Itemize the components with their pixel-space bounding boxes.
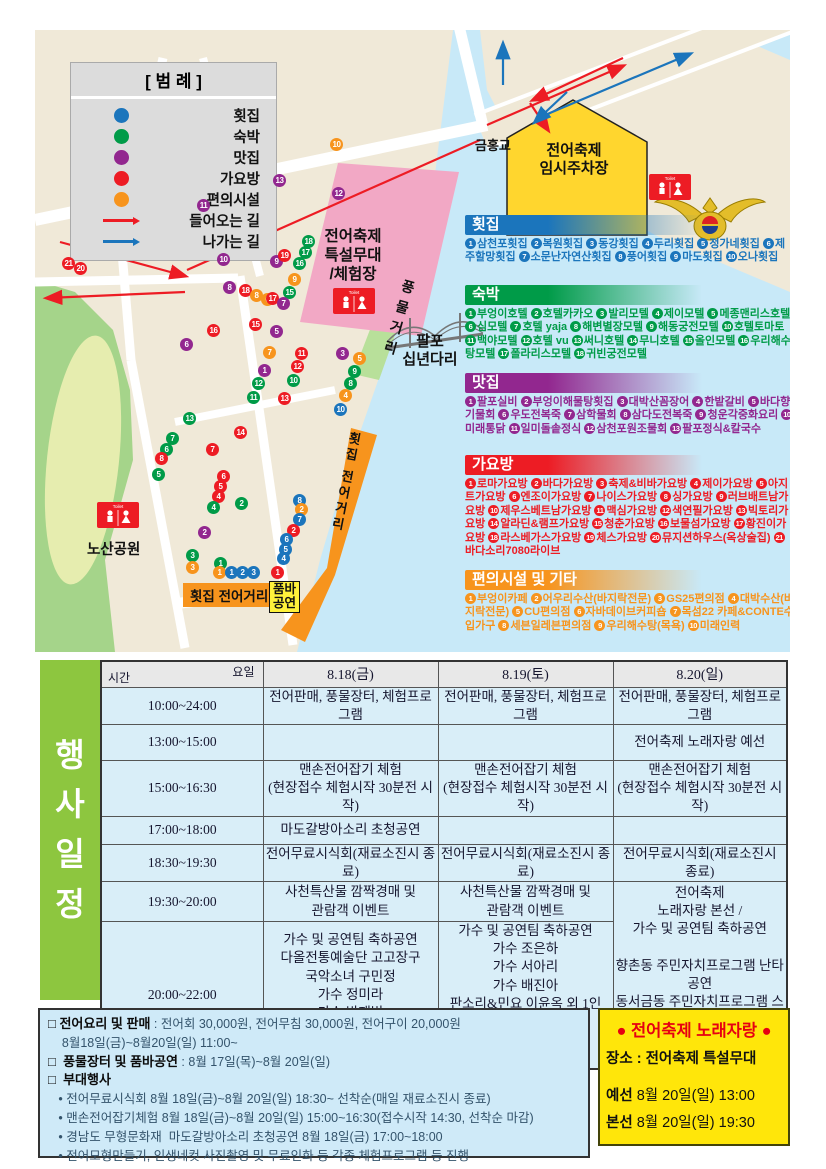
item-number-icon: 4 [642,238,653,249]
corner-time-label: 시간 [108,669,130,686]
item-label: 자바데이브커피숍 [586,606,667,618]
item-label: 올인모텔 [695,335,735,347]
list-item: 18귀빈궁전모텔 [574,348,647,360]
item-number-icon: 1 [465,396,476,407]
legend-icon-cell [99,150,143,165]
legend-icon-cell [99,192,143,207]
schedule-cell: 마도갈방아소리 초청공연 [263,816,438,844]
time-cell: 18:30~19:30 [101,844,263,881]
item-label: 한밭갈비 [704,396,744,408]
list-item: 13팔포정식&칼국수 [670,423,761,435]
arrow-icon [103,238,140,246]
item-label: 부엉이해물탕횟집 [533,396,614,408]
time-cell: 10:00~24:00 [101,687,263,724]
legend-row: 숙박 [71,126,276,147]
item-number-icon: 6 [465,321,476,332]
map-dot: 16 [293,257,306,270]
list-item: 7삼학물회 [564,409,620,421]
time-cell: 15:00~16:30 [101,760,263,816]
pumba-performance-label: 품바 공연 [269,581,300,613]
map-dot: 13 [183,412,196,425]
section-list: 1팔포실비 2부엉이해물탕횟집 3대박산꼼장어 4한밭갈비 5바다향기물회 6우… [465,396,790,436]
item-number-icon: 6 [498,409,509,420]
item-number-icon: 10 [488,505,499,516]
legend-icon-cell [99,238,143,246]
info-line: □ 풍물장터 및 품바공연 : 8월 17일(목)~8월 20일(일) [48,1053,580,1072]
map-dot: 8 [155,452,168,465]
item-number-icon: 9 [646,321,657,332]
list-item: 11맥심가요방 [594,505,660,517]
legend-row: 횟집 [71,105,276,126]
category-dot-icon [114,108,129,123]
list-item: 7호텔 yaja [510,321,570,333]
item-label: 제이가요방 [702,478,753,490]
map-dot: 10 [217,253,230,266]
day-header: 8.19(토) [438,661,613,687]
list-item: 9청운각중화요리 [695,409,781,421]
singing-contest-box: ● 전어축제 노래자랑 ● 장소 : 전어축제 특설무대 예선 8월 20일(일… [598,1008,790,1146]
directory-section-gayobang: 가요방 1로마가요방 2바다가요방 3축제&비바가요방 4제이가요방 5아지트가… [465,455,790,558]
list-item: 4제이가요방 [690,478,756,490]
schedule-cell: 사천특산물 깜짝경매 및 관람객 이벤트 [263,882,438,922]
schedule-cell: 맨손전어잡기 체험 (현장접수 체험시작 30분전 시작) [438,760,613,816]
item-label: 라스베가스가요방 [500,532,581,544]
item-label: 축제&비바가요방 [608,478,687,490]
info-lines: □ 전어요리 및 판매 : 전어회 30,000원, 전어무침 30,000원,… [48,1015,580,1165]
item-label: 엔조이가요방 [521,491,582,503]
schedule-cell: 전어판매, 풍물장터, 체험프로그램 [438,687,613,724]
list-item: 2복원횟집 [531,238,587,250]
item-number-icon: 21 [774,532,785,543]
list-item: 8해변별장모텔 [570,321,646,333]
info-line: • 전어무료시식회 8월 18일(금)~8월 20일(일) 18:30~ 선착순… [48,1090,580,1109]
info-line: 8월18일(금)~8월20일(일) 11:00~ [48,1034,580,1053]
map-dot: 4 [339,389,352,402]
item-label: 두리횟집 [654,238,694,250]
svg-text:Toilet: Toilet [665,176,676,181]
section-title: 편의시설 및 기타 [465,570,702,590]
info-line: □ 부대행사 [48,1071,580,1090]
item-label: 호텔카카오 [543,308,594,320]
item-number-icon: 7 [519,251,530,262]
item-number-icon: 3 [654,593,665,604]
info-line: • 전어모형만들기, 인생네컷 사진촬영 및 무료인화 등 각종 체험프로그램 … [48,1147,580,1166]
section-title: 가요방 [465,455,702,475]
list-item: 6심모텔 [465,321,510,333]
item-label: 보물섬가요방 [670,518,731,530]
toilet-icon: Toilet [649,174,691,200]
map-dot: 20 [74,262,87,275]
list-item: 11일미돌솥정식 [509,423,585,435]
schedule-cell [438,816,613,844]
map-dot: 10 [287,374,300,387]
item-label: 발리모텔 [608,308,648,320]
item-number-icon: 1 [465,478,476,489]
item-label: 마도횟집 [682,251,722,263]
item-number-icon: 2 [521,396,532,407]
info-line: • 맨손전어잡기체험 8월 18일(금)~8월 20일(일) 15:00~16:… [48,1109,580,1128]
map-dot: 1 [258,364,271,377]
item-label: 삼천포횟집 [477,238,528,250]
list-item: 20뮤지션하우스(옥상술집) [650,532,774,544]
list-item: 9마도횟집 [670,251,726,263]
map-dot: 11 [295,347,308,360]
item-number-icon: 17 [734,518,745,529]
item-number-icon: 8 [570,321,581,332]
legend-row: 가요방 [71,168,276,189]
item-number-icon: 6 [763,238,774,249]
item-number-icon: 12 [584,423,595,434]
item-label: 써니호텔 [584,335,624,347]
info-line-text: • 맨손전어잡기체험 8월 18일(금)~8월 20일(일) 15:00~16:… [48,1111,534,1125]
item-number-icon: 16 [738,335,749,346]
item-number-icon: 15 [683,335,694,346]
legend-label: 들어오는 길 [143,210,276,231]
category-dot-icon [114,150,129,165]
map-dot: 10 [334,403,347,416]
legend-dot-rows: 횟집 숙박 맛집 가요방 편의시설 [71,105,276,210]
item-label: 팔포정식&칼국수 [682,423,761,435]
schedule-cell: 전어무료시식회(재료소진시 종료) [263,844,438,881]
parking-label: 전어축제 임시주차장 [508,142,640,179]
item-label: 어우리수산(바지락전문) [543,593,652,605]
time-cell: 13:00~15:00 [101,724,263,760]
geumhong-bridge-label: 금홍교 [475,138,511,154]
item-label: GS25편의점 [666,593,725,605]
item-label: 메종맨리스호텔 [719,308,790,320]
info-line-text: • 경남도 무형문화재 마도갈방아소리 초청공연 8월 18일(금) 17:00… [48,1130,443,1144]
info-line-text: 8월18일(금)~8월20일(일) 11:00~ [48,1036,238,1050]
map-dot: 5 [152,468,165,481]
item-label: 우리해수탕(목욕) [606,620,684,632]
legend-row: 나가는 길 [71,231,276,252]
schedule-cell [438,724,613,760]
map-dot: 5 [270,325,283,338]
list-item: 6자바데이브커피숍 [574,606,670,618]
list-item: 5메종맨리스호텔 [707,308,790,320]
contest-preliminary: 예선 8월 20일(일) 13:00 [606,1084,782,1105]
svg-text:Toilet: Toilet [349,290,360,295]
item-label: 청운각중화요리 [707,409,778,421]
item-number-icon: 7 [670,606,681,617]
map-dot: 9 [288,273,301,286]
list-item: 3GS25편의점 [654,593,728,605]
list-item: 3대박산꼼장어 [617,396,693,408]
item-label: 나이스가요방 [596,491,657,503]
item-number-icon: 10 [781,409,790,420]
list-item: 13써니호텔 [572,335,628,347]
info-line-head: □ 풍물장터 및 품바공연 [48,1054,178,1069]
map-dot: 1 [271,566,284,579]
list-item: 8삼다도전복죽 [620,409,696,421]
item-label: 동강횟집 [598,238,638,250]
map-dot: 7 [277,297,290,310]
list-item: 8세븐일레븐편의점 [498,620,594,632]
toilet-icon: Toilet [333,288,375,314]
section-list: 1로마가요방 2바다가요방 3축제&비바가요방 4제이가요방 5아지트가요방 6… [465,478,790,558]
map-dot: 12 [291,360,304,373]
item-label: 삼학물회 [576,409,616,421]
item-number-icon: 14 [627,335,638,346]
item-label: 체스가요방 [596,532,647,544]
item-number-icon: 4 [728,593,739,604]
section-list: 1부엉이카페 2어우리수산(바지락전문) 3GS25편의점 4대박수산(바지락전… [465,593,790,633]
time-cell: 19:30~20:00 [101,882,263,922]
map-dot: 5 [353,352,366,365]
list-item: 2호텔카카오 [531,308,597,320]
legend-icon-cell [99,171,143,186]
schedule-cell: 맨손전어잡기 체험 (현장접수 체험시작 30분전 시작) [613,760,787,816]
legend-row: 편의시설 [71,189,276,210]
item-label: 세븐일레븐편의점 [510,620,591,632]
legend-arrow-rows: 들어오는 길 나가는 길 [71,210,276,252]
item-number-icon: 5 [756,478,767,489]
list-item: 2부엉이해물탕횟집 [521,396,617,408]
info-line-text: : 전어회 30,000원, 전어무침 30,000원, 전어구이 20,000… [150,1017,460,1031]
item-number-icon: 12 [660,505,671,516]
event-schedule: 행 사 일 정 요일 시간 8.18(금) 8.19(토) 8.20(일) 10… [40,660,788,1000]
schedule-cell: 전어무료시식회(재료소진시 종료) [613,844,787,881]
item-label: 호텔토마토 [734,321,785,333]
item-label: 대박산꼼장어 [629,396,690,408]
list-item: 10제우스베트남가요방 [488,505,594,517]
contest-title: ● 전어축제 노래자랑 ● [606,1017,782,1041]
item-label: 팔포실비 [477,396,517,408]
legend-label: 맛집 [143,147,276,168]
map-dot: 13 [278,392,291,405]
map-dot: 12 [332,187,345,200]
legend-row: 들어오는 길 [71,210,276,231]
festival-info-box: □ 전어요리 및 판매 : 전어회 30,000원, 전어무침 30,000원,… [38,1008,590,1158]
item-label: 백야모텔 [477,335,517,347]
map-dot: 19 [278,249,291,262]
schedule-corner-cell: 요일 시간 [101,661,263,687]
item-number-icon: 12 [521,335,532,346]
item-number-icon: 17 [498,348,509,359]
info-line: • 경남도 무형문화재 마도갈방아소리 초청공연 8월 18일(금) 17:00… [48,1128,580,1147]
item-number-icon: 20 [650,532,661,543]
category-dot-icon [114,192,129,207]
item-number-icon: 3 [596,478,607,489]
bridge-exit-road [481,30,790,132]
item-number-icon: 8 [620,409,631,420]
item-number-icon: 10 [722,321,733,332]
list-item: 1로마가요방 [465,478,531,490]
corner-day-label: 요일 [232,663,254,680]
info-line-text: : 8월 17일(목)~8월 20일(일) [178,1055,330,1069]
map-dot: 2 [235,497,248,510]
item-label: 해동궁전모텔 [658,321,719,333]
section-title: 숙박 [465,285,702,305]
item-label: 싱가요방 [672,491,712,503]
item-label: 색연필가요방 [672,505,733,517]
item-label: 귀빈궁전모텔 [586,348,647,360]
list-item: 9해동궁전모텔 [646,321,722,333]
item-label: 맥심가요방 [606,505,657,517]
item-number-icon: 9 [594,620,605,631]
list-item: 15청춘가요방 [592,518,658,530]
item-number-icon: 13 [670,423,681,434]
round-value: 8월 20일(일) 19:30 [637,1115,755,1131]
item-label: 일미돌솥정식 [521,423,582,435]
item-label: 뮤지션하우스(옥상술집) [662,532,771,544]
item-label: 알라딘&램프가요방 [500,518,589,530]
item-number-icon: 9 [716,491,727,502]
list-item: 2어우리수산(바지락전문) [531,593,655,605]
list-item: 7소문난자연산횟집 [519,251,615,263]
item-label: CU편의점 [524,606,570,618]
time-cell: 17:00~18:00 [101,816,263,844]
festival-map: [ 범 례 ] 횟집 숙박 맛집 [35,30,790,652]
map-dot: 7 [263,346,276,359]
list-item: 10미래인력 [688,620,740,632]
item-label: 제이모텔 [664,308,704,320]
item-number-icon: 2 [531,593,542,604]
list-item: 3발리모텔 [596,308,652,320]
item-label: 복원횟집 [543,238,583,250]
nosan-park-label: 노산공원 [87,542,140,560]
map-dot: 16 [207,324,220,337]
item-number-icon: 7 [584,491,595,502]
item-label: 호텔 yaja [522,321,567,333]
item-label: 우도전복죽 [510,409,561,421]
contest-place: 장소 : 전어축제 특설무대 [606,1047,782,1068]
list-item: 14알라딘&램프가요방 [488,518,592,530]
item-number-icon: 1 [465,308,476,319]
list-item: 5CU편의점 [512,606,573,618]
list-item: 7나이스가요방 [584,491,660,503]
item-label: 해변별장모텔 [582,321,643,333]
item-number-icon: 1 [465,593,476,604]
legend-icon-cell [99,217,143,225]
legend-title: [ 범 례 ] [71,63,276,99]
item-label: 정가네횟집 [709,238,760,250]
list-item: 8풍어횟집 [615,251,671,263]
item-number-icon: 2 [531,478,542,489]
list-item: 12호텔 vu [521,335,572,347]
list-item: 1부엉이카페 [465,593,531,605]
day-header: 8.18(금) [263,661,438,687]
schedule-side-label: 행 사 일 정 [40,660,100,1000]
map-dot: 3 [186,561,199,574]
category-dot-icon [114,129,129,144]
map-dot: 13 [273,174,286,187]
info-line-head: □ 부대행사 [48,1072,111,1087]
item-number-icon: 14 [488,518,499,529]
item-number-icon: 9 [670,251,681,262]
legend-label: 횟집 [143,105,276,126]
list-item: 14무니호텔 [627,335,683,347]
map-dot: 14 [234,426,247,439]
legend-body: 횟집 숙박 맛집 가요방 편의시설 [71,99,276,260]
map-dot: 7 [206,443,219,456]
contest-final: 본선 8월 20일(일) 19:30 [606,1111,782,1132]
map-dot: 10 [330,138,343,151]
item-number-icon: 1 [465,238,476,249]
schedule-cell [613,816,787,844]
list-item: 17폴라리스모텔 [498,348,574,360]
item-label: 로마가요방 [477,478,528,490]
section-list: 1부엉이호텔 2호텔카카오 3발리모텔 4제이모텔 5메종맨리스호텔 6심모텔 … [465,308,790,362]
list-item: 1부엉이호텔 [465,308,531,320]
map-dot: 4 [207,501,220,514]
fish-street-label: 횟집 전어거리 [183,583,275,607]
legend-row: 맛집 [71,147,276,168]
map-dot: 6 [180,338,193,351]
schedule-cell: 전어판매, 풍물장터, 체험프로그램 [263,687,438,724]
item-number-icon: 5 [707,308,718,319]
item-number-icon: 6 [509,491,520,502]
stage-label: 전어축제 특설무대 /체험장 [297,228,409,285]
item-label: 호텔 vu [533,335,569,347]
item-label: 폴라리스모텔 [510,348,571,360]
item-number-icon: 15 [592,518,603,529]
schedule-cell: 맨손전어잡기 체험 (현장접수 체험시작 30분전 시작) [263,760,438,816]
item-label: 부엉이호텔 [477,308,528,320]
item-label: 삼다도전복죽 [632,409,693,421]
item-number-icon: 4 [652,308,663,319]
item-label: 바다소리7080라이브 [465,545,560,557]
list-item: 16보물섬가요방 [658,518,734,530]
list-item: 1삼천포횟집 [465,238,531,250]
list-item: 3축제&비바가요방 [596,478,690,490]
svg-text:Toilet: Toilet [113,504,124,509]
schedule-cell: 전어판매, 풍물장터, 체험프로그램 [613,687,787,724]
item-label: 미래통닭 [465,423,505,435]
item-number-icon: 5 [748,396,759,407]
info-line-text: • 전어모형만들기, 인생네컷 사진촬영 및 무료인화 등 각종 체험프로그램 … [48,1149,469,1163]
schedule-cell [263,724,438,760]
item-label: 무니호텔 [639,335,679,347]
legend-label: 나가는 길 [143,231,276,252]
map-dot: 3 [247,566,260,579]
list-item: 3동강횟집 [586,238,642,250]
legend-label: 숙박 [143,126,276,147]
schedule-cell: 전어축제 노래자랑 예선 [613,724,787,760]
item-number-icon: 2 [531,238,542,249]
map-dot: 2 [198,526,211,539]
section-list: 1삼천포횟집 2복원횟집 3동강횟집 4두리횟집 5정가네횟집 6제주할망횟집 … [465,238,790,265]
directory-section-pyeonui: 편의시설 및 기타 1부엉이카페 2어우리수산(바지락전문) 3GS25편의점 … [465,570,790,633]
info-line: □ 전어요리 및 판매 : 전어회 30,000원, 전어무침 30,000원,… [48,1015,580,1034]
round-label: 본선 [606,1115,633,1131]
list-item: 12삼천포원조물회 [584,423,670,435]
item-number-icon: 2 [531,308,542,319]
list-item: 2바다가요방 [531,478,597,490]
info-line-head: □ 전어요리 및 판매 [48,1016,150,1031]
info-line-text: • 전어무료시식회 8월 18일(금)~8월 20일(일) 18:30~ 선착순… [48,1092,491,1106]
map-legend: [ 범 례 ] 횟집 숙박 맛집 [70,62,277,261]
item-number-icon: 16 [658,518,669,529]
round-label: 예선 [606,1088,633,1104]
item-label: 청춘가요방 [604,518,655,530]
legend-icon-cell [99,108,143,123]
directory-section-matjip: 맛집 1팔포실비 2부엉이해물탕횟집 3대박산꼼장어 4한밭갈비 5바다향기물회… [465,373,790,436]
map-dot: 4 [277,552,290,565]
list-item: 6엔조이가요방 [509,491,585,503]
map-dot: 3 [336,347,349,360]
item-number-icon: 18 [488,532,499,543]
list-item: 1팔포실비 [465,396,521,408]
schedule-cell: 전어무료시식회(재료소진시 종료) [438,844,613,881]
item-label: 부엉이카페 [477,593,528,605]
item-label: 소문난자연산횟집 [531,251,612,263]
legend-label: 가요방 [143,168,276,189]
item-number-icon: 4 [692,396,703,407]
list-item: 8싱가요방 [660,491,716,503]
item-number-icon: 3 [617,396,628,407]
map-dot: 11 [247,391,260,404]
